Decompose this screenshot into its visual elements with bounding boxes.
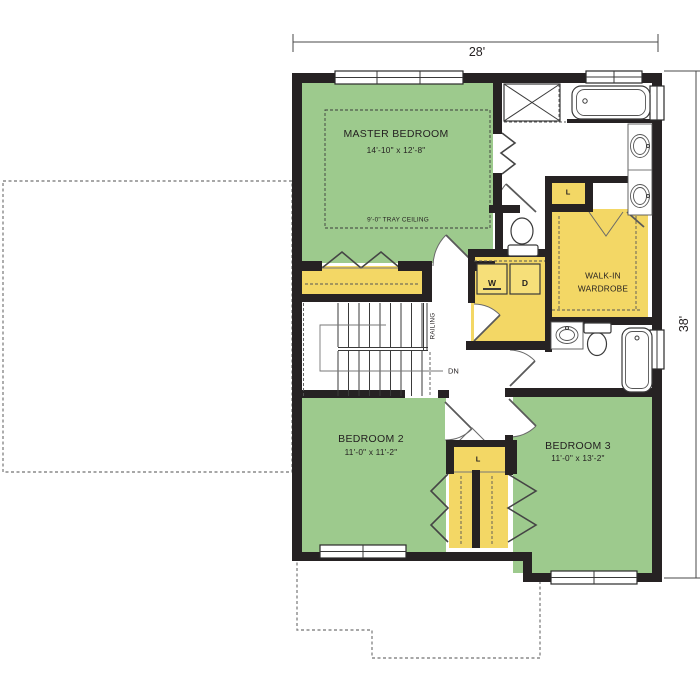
roof-outline-left bbox=[3, 181, 292, 472]
linen-closet-upper-label: L bbox=[566, 188, 571, 197]
washer-label: W bbox=[488, 278, 496, 288]
bedroom-3-size: 11'-0" x 13'-2" bbox=[551, 453, 604, 463]
bathroom-2-fixtures bbox=[551, 322, 652, 392]
master-bath-bifold-door bbox=[501, 133, 515, 174]
bedroom-2-area bbox=[302, 398, 446, 552]
stairs-down-label: DN bbox=[448, 367, 459, 376]
width-dimension-label: 28' bbox=[469, 45, 485, 59]
dryer-label: D bbox=[522, 278, 528, 288]
tray-ceiling-note: 9'-0" TRAY CEILING bbox=[367, 217, 429, 224]
linen-closet-lower-label: L bbox=[476, 455, 481, 464]
walk-in-wardrobe-label: WALK-IN WARDROBE bbox=[578, 270, 628, 295]
stairs bbox=[304, 303, 444, 396]
bedroom-3-label: BEDROOM 3 bbox=[545, 440, 611, 452]
master-bedroom-size: 14'-10" x 12'-8" bbox=[367, 145, 426, 155]
railing-label: RAILING bbox=[430, 313, 437, 340]
toilet bbox=[511, 218, 533, 244]
linen-closet-lower-area bbox=[449, 443, 514, 472]
bedroom-2-label: BEDROOM 2 bbox=[338, 433, 404, 445]
bedroom-2-size: 11'-0" x 11'-2" bbox=[345, 447, 398, 457]
height-dimension-label: 38' bbox=[677, 316, 691, 332]
roof-outline-bottom bbox=[297, 557, 540, 658]
laundry-fixtures bbox=[474, 261, 545, 294]
floor-plan: 28' 38' MASTER BEDROOM 14'-10" x 12'-8" … bbox=[0, 0, 700, 700]
toilet bbox=[588, 333, 607, 356]
bedroom-3-closet-area bbox=[479, 472, 508, 548]
floor-plan-drawing bbox=[0, 0, 700, 700]
master-bedroom-label: MASTER BEDROOM bbox=[343, 128, 448, 140]
